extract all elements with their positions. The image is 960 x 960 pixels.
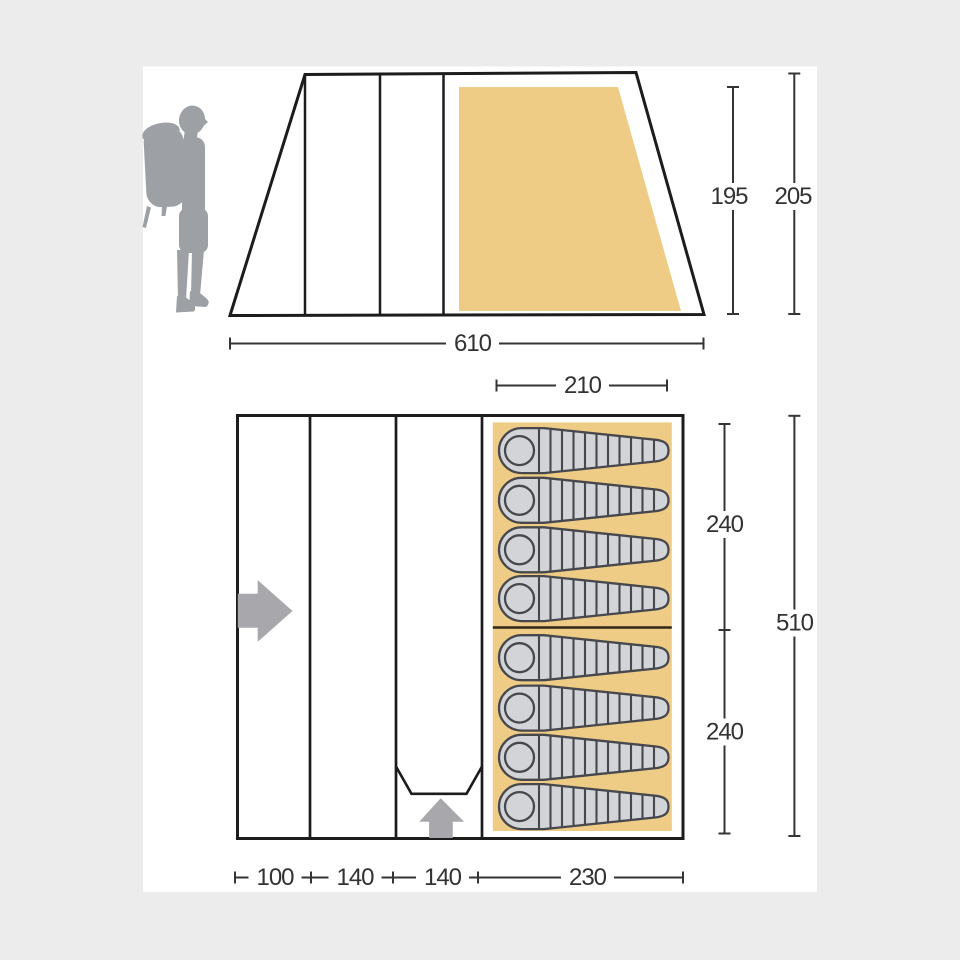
- svg-text:205: 205: [774, 183, 812, 210]
- svg-text:230: 230: [569, 864, 607, 891]
- svg-text:210: 210: [564, 372, 602, 399]
- svg-text:510: 510: [776, 609, 814, 636]
- svg-text:100: 100: [256, 864, 294, 891]
- svg-text:140: 140: [424, 864, 462, 891]
- svg-text:610: 610: [454, 330, 492, 357]
- svg-text:240: 240: [706, 511, 744, 538]
- svg-text:195: 195: [710, 183, 748, 210]
- svg-text:240: 240: [706, 719, 744, 746]
- svg-text:140: 140: [336, 864, 374, 891]
